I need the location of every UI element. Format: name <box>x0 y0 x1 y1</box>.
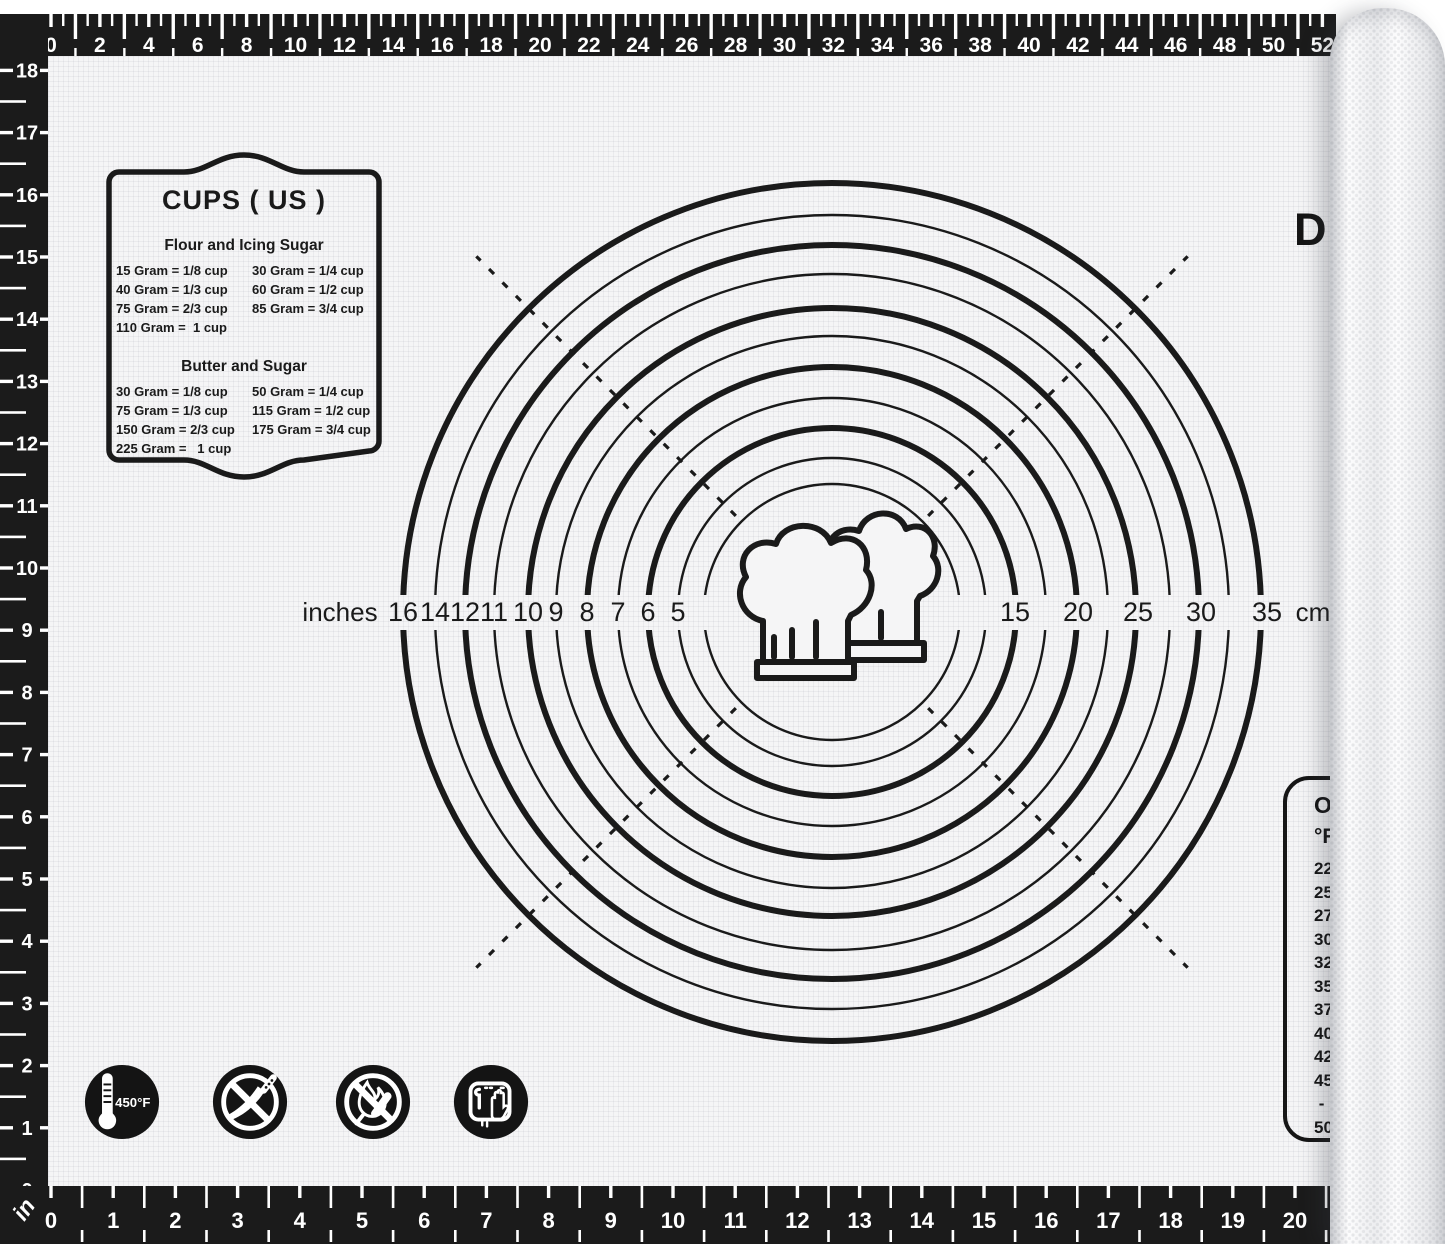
ruler-tick <box>0 598 26 601</box>
ruler-tick <box>0 349 26 352</box>
ruler-tick <box>709 14 712 39</box>
ruler-number: 5 <box>356 1208 368 1233</box>
ruler-tick <box>1052 14 1055 39</box>
ruler-tick <box>1272 14 1275 27</box>
ruler-tick <box>612 14 615 39</box>
ruler-tick <box>1076 1230 1079 1242</box>
conversion-right: 50 Gram = 1/4 cup <box>252 382 372 401</box>
ruler-tick <box>236 1186 239 1198</box>
ruler-tick <box>1076 1186 1079 1208</box>
ruler-tick <box>578 1186 581 1208</box>
ruler-tick <box>40 69 48 72</box>
ruler-tick <box>0 162 26 165</box>
ruler-tick <box>600 14 602 26</box>
ruler-tick <box>758 14 761 39</box>
ruler-tick <box>807 14 810 39</box>
ruler-tick <box>143 1186 146 1208</box>
ruler-tick <box>978 14 981 27</box>
ruler-tick <box>0 1158 26 1161</box>
ruler-tick <box>1101 14 1104 39</box>
ruler-tick <box>1200 1186 1203 1208</box>
ruler-tick <box>0 380 13 383</box>
ruler-number: 17 <box>16 123 38 145</box>
ruler-number: 10 <box>661 1208 685 1233</box>
ruler-number: 4 <box>21 931 33 953</box>
ruler-tick <box>1014 1230 1017 1242</box>
ruler-tick <box>0 784 26 787</box>
ruler-number: 8 <box>241 34 253 56</box>
ruler-tick <box>423 1186 426 1198</box>
ruler-number: 0 <box>45 1208 57 1233</box>
ruler-number: 8 <box>542 1208 554 1233</box>
ruler-tick <box>318 14 321 39</box>
ruler-tick <box>954 48 956 56</box>
ruler-tick <box>857 48 859 56</box>
ruler-tick <box>267 1186 270 1208</box>
ruler-tick <box>221 48 223 56</box>
cups-title: CUPS ( US ) <box>100 185 388 216</box>
ruler-tick <box>172 48 174 56</box>
ruler-tick <box>0 504 13 507</box>
ruler-tick <box>0 100 26 103</box>
ruler-tick <box>982 1186 985 1198</box>
ruler-tick <box>1199 48 1201 56</box>
conversion-left: 15 Gram = 1/8 cup <box>116 261 236 280</box>
ruler-tick <box>40 504 48 507</box>
ruler-left-inches: 0123456789101112131415161718 <box>0 14 48 1244</box>
ruler-tick <box>331 14 333 26</box>
ruler-tick <box>641 1186 644 1208</box>
ruler-tick <box>74 48 76 56</box>
ruler-number: 28 <box>724 34 748 56</box>
ruler-tick <box>330 1186 333 1208</box>
ruler-number: 14 <box>16 309 39 331</box>
ruler-tick <box>0 255 13 258</box>
ruler-number: 26 <box>675 34 698 56</box>
ruler-tick <box>40 753 48 756</box>
ruler-tick <box>636 14 639 27</box>
ruler-tick <box>330 1230 333 1242</box>
conversion-left: 30 Gram = 1/8 cup <box>116 382 236 401</box>
ruler-tick <box>796 14 798 26</box>
ruler-tick <box>40 1064 48 1067</box>
butter-heading: Butter and Sugar <box>100 358 388 376</box>
ruler-tick <box>1003 14 1006 39</box>
ruler-tick <box>765 1186 768 1208</box>
ruler-tick <box>1293 1186 1296 1198</box>
ruler-tick <box>1027 14 1030 27</box>
ruler-number: 46 <box>1164 34 1187 56</box>
ruler-tick <box>98 14 101 27</box>
conversion-left: 225 Gram = 1 cup <box>116 439 236 458</box>
ruler-tick <box>0 1064 13 1067</box>
ruler-tick <box>1263 1186 1266 1208</box>
ruler-tick <box>485 1186 488 1198</box>
ruler-number: 16 <box>431 34 454 56</box>
ruler-tick <box>844 14 846 26</box>
ruler-tick <box>514 14 517 39</box>
ruler-tick <box>1040 14 1042 26</box>
ruler-tick <box>40 255 48 258</box>
ruler-tick <box>514 48 516 56</box>
ruler-number: 12 <box>785 1208 809 1233</box>
ruler-tick <box>1150 14 1153 39</box>
ruler-tick <box>367 14 370 39</box>
ruler-tick <box>1236 14 1238 26</box>
ruler-tick <box>355 14 357 26</box>
ruler-tick <box>258 14 260 26</box>
ruler-tick <box>1248 48 1250 56</box>
ruler-tick <box>74 14 77 39</box>
ruler-tick <box>205 1186 208 1208</box>
ruler-number: 15 <box>16 247 38 269</box>
ruler-tick <box>205 1230 208 1242</box>
ruler-number: 20 <box>1283 1208 1307 1233</box>
ruler-tick <box>0 847 26 850</box>
ruler-tick <box>209 14 211 26</box>
ruler-number: 34 <box>871 34 895 56</box>
ruler-tick <box>429 14 431 26</box>
ruler-tick <box>661 14 664 39</box>
ruler-tick <box>673 14 675 26</box>
max-temperature-badge: 450°F <box>83 1063 161 1141</box>
no-open-flame-badge <box>334 1063 412 1141</box>
ruler-tick <box>1064 14 1066 26</box>
conversion-row: 225 Gram = 1 cup <box>100 439 388 458</box>
ruler-tick <box>0 566 13 569</box>
ruler-tick <box>40 815 48 818</box>
ruler-number: 14 <box>382 34 406 56</box>
ruler-tick <box>671 1186 674 1198</box>
ruler-tick <box>1138 1230 1141 1242</box>
ruler-tick <box>0 909 26 912</box>
ruler-number: 8 <box>21 682 32 704</box>
ruler-tick <box>502 14 504 26</box>
ruler-number: 24 <box>626 34 650 56</box>
ruler-tick <box>889 1230 892 1242</box>
ruler-tick <box>0 691 13 694</box>
ruler-tick <box>0 318 13 321</box>
ruler-number: 15 <box>972 1208 996 1233</box>
ruler-tick <box>0 629 13 632</box>
ruler-number: 7 <box>21 745 32 767</box>
ruler-number: 16 <box>16 185 38 207</box>
ruler-tick <box>563 48 565 56</box>
ruler-tick <box>1211 14 1213 26</box>
conversion-row: 110 Gram = 1 cup <box>100 318 388 337</box>
ruler-tick <box>0 1033 26 1036</box>
ruler-tick <box>1003 48 1005 56</box>
ruler-tick <box>1296 14 1299 39</box>
conversion-row: 150 Gram = 2/3 cup175 Gram = 3/4 cup <box>100 420 388 439</box>
ruler-number: 16 <box>1034 1208 1058 1233</box>
ruler-number: 12 <box>333 34 356 56</box>
ruler-tick <box>661 48 663 56</box>
ruler-tick <box>796 1186 799 1198</box>
ruler-tick <box>734 14 737 27</box>
ruler-tick <box>1014 1186 1017 1208</box>
ruler-number: 1 <box>107 1208 119 1233</box>
cups-conversion-box: CUPS ( US ) Flour and Icing Sugar 15 Gra… <box>100 143 388 489</box>
oven-mitt-badge <box>452 1063 530 1141</box>
ruler-tick <box>991 14 993 26</box>
ruler-tick <box>1285 14 1287 26</box>
ruler-tick <box>609 1186 612 1198</box>
ruler-tick <box>174 1186 177 1198</box>
brand-text-partial: D <box>1294 204 1327 256</box>
ruler-tick <box>856 14 859 39</box>
ruler-tick <box>0 660 26 663</box>
ruler-number: 2 <box>94 34 106 56</box>
ruler-tick <box>1150 48 1152 56</box>
ruler-tick <box>649 14 651 26</box>
ruler-tick <box>967 14 969 26</box>
ruler-tick <box>0 1095 26 1098</box>
ruler-tick <box>1113 14 1115 26</box>
conversion-right: 60 Gram = 1/2 cup <box>252 280 372 299</box>
ruler-tick <box>111 14 113 26</box>
conversion-right: 85 Gram = 3/4 cup <box>252 299 372 318</box>
ruler-tick <box>40 629 48 632</box>
butter-rows: 30 Gram = 1/8 cup50 Gram = 1/4 cup75 Gra… <box>100 382 388 458</box>
ruler-number: 19 <box>1221 1208 1245 1233</box>
ruler-tick <box>771 14 773 26</box>
ruler-tick <box>1045 1186 1048 1198</box>
ruler-number: 50 <box>1262 34 1285 56</box>
ruler-number: 30 <box>773 34 796 56</box>
ruler-tick <box>1016 14 1018 26</box>
ruler-number: 4 <box>143 34 155 56</box>
ruler-number: 3 <box>21 993 32 1015</box>
ruler-tick <box>40 380 48 383</box>
ruler-number: 18 <box>16 60 38 82</box>
ruler-tick <box>1223 14 1226 27</box>
ruler-tick <box>827 1230 830 1242</box>
ruler-tick <box>0 940 13 943</box>
ruler-tick <box>269 14 272 39</box>
ruler-tick <box>0 225 26 228</box>
ruler-tick <box>282 14 284 26</box>
ruler-number: 48 <box>1213 34 1237 56</box>
ruler-tick <box>930 14 933 27</box>
ruler-tick <box>112 1186 115 1198</box>
ruler-tick <box>40 691 48 694</box>
ruler-tick <box>392 14 395 27</box>
ruler-tick <box>1101 48 1103 56</box>
ruler-tick <box>747 14 749 26</box>
ruler-tick <box>1231 1186 1234 1198</box>
ruler-tick <box>1169 1186 1172 1198</box>
ruler-tick <box>245 14 248 27</box>
conversion-right: 175 Gram = 3/4 cup <box>252 420 372 439</box>
conversion-left: 75 Gram = 2/3 cup <box>116 299 236 318</box>
ruler-tick <box>380 14 382 26</box>
ruler-tick <box>551 14 553 26</box>
ruler-number: 13 <box>16 371 38 393</box>
ruler-number: 11 <box>724 1208 747 1233</box>
ruler-number: 4 <box>294 1208 307 1233</box>
no-knife-badge <box>211 1063 289 1141</box>
ruler-tick <box>918 14 920 26</box>
ruler-number: 40 <box>1017 34 1040 56</box>
ruler-tick <box>417 48 419 56</box>
ruler-tick <box>869 14 871 26</box>
ruler-tick <box>392 1230 395 1242</box>
ruler-tick <box>722 14 724 26</box>
flour-heading: Flour and Icing Sugar <box>100 237 388 255</box>
ruler-tick <box>952 1230 955 1242</box>
conversion-right <box>252 439 372 458</box>
ruler-tick <box>1162 14 1164 26</box>
ruler-tick <box>575 14 577 26</box>
ruler-tick <box>1107 1186 1110 1198</box>
ruler-number: 2 <box>169 1208 181 1233</box>
ruler-tick <box>0 411 26 414</box>
ruler-tick <box>893 14 895 26</box>
ruler-tick <box>453 14 455 26</box>
ruler-number: 18 <box>1158 1208 1182 1233</box>
ruler-tick <box>685 14 688 27</box>
ruler-tick <box>404 14 406 26</box>
ruler-tick <box>0 131 13 134</box>
ruler-number: 22 <box>577 34 600 56</box>
ruler-tick <box>368 48 370 56</box>
ruler-tick <box>952 1186 955 1208</box>
ruler-tick <box>294 14 297 27</box>
ruler-tick <box>319 48 321 56</box>
ruler-tick <box>172 14 175 39</box>
ruler-number: 9 <box>21 620 32 642</box>
ruler-tick <box>527 14 529 26</box>
ruler-tick <box>0 753 13 756</box>
ruler-tick <box>578 1230 581 1242</box>
ruler-tick <box>454 1186 457 1208</box>
ruler-tick <box>307 14 309 26</box>
conversion-left: 150 Gram = 2/3 cup <box>116 420 236 439</box>
ruler-tick <box>808 48 810 56</box>
ruler-tick <box>1174 14 1177 27</box>
ruler-tick <box>563 14 566 39</box>
ruler-tick <box>954 14 957 39</box>
ruler-tick <box>516 1186 519 1208</box>
ruler-tick <box>392 1186 395 1208</box>
ruler-tick <box>698 14 700 26</box>
ruler-tick <box>710 48 712 56</box>
ruler-tick <box>832 14 835 27</box>
ruler-number: 44 <box>1115 34 1139 56</box>
ruler-number: 17 <box>1096 1208 1120 1233</box>
ruler-tick <box>40 877 48 880</box>
ruler-tick <box>478 14 480 26</box>
ruler-tick <box>40 1002 48 1005</box>
conversion-row: 15 Gram = 1/8 cup30 Gram = 1/4 cup <box>100 261 388 280</box>
ruler-tick <box>40 131 48 134</box>
ruler-tick <box>1325 1230 1328 1242</box>
ruler-tick <box>765 1230 768 1242</box>
ruler-number: 9 <box>605 1208 617 1233</box>
ruler-tick <box>123 48 125 56</box>
ruler-number: 20 <box>528 34 551 56</box>
ruler-number: 32 <box>822 34 845 56</box>
ruler-tick <box>905 14 908 39</box>
conversion-row: 40 Gram = 1/3 cup60 Gram = 1/2 cup <box>100 280 388 299</box>
ruler-number: 1 <box>21 1118 32 1140</box>
ruler-tick <box>1076 14 1079 27</box>
ruler-tick <box>889 1186 892 1208</box>
ruler-tick <box>942 14 944 26</box>
conversion-row: 75 Gram = 2/3 cup85 Gram = 3/4 cup <box>100 299 388 318</box>
ruler-tick <box>0 69 13 72</box>
ruler-tick <box>1198 14 1201 39</box>
ruler-tick <box>827 1186 830 1208</box>
ruler-tick <box>1297 48 1299 56</box>
ruler-tick <box>759 48 761 56</box>
ruler-tick <box>703 1230 706 1242</box>
ruler-tick <box>1200 1230 1203 1242</box>
ruler-tick <box>0 473 26 476</box>
rolled-mat-edge <box>1330 8 1445 1244</box>
ruler-tick <box>123 14 126 39</box>
conversion-left: 40 Gram = 1/3 cup <box>116 280 236 299</box>
ruler-tick <box>1138 1186 1141 1208</box>
ruler-tick <box>489 14 492 27</box>
conversion-left: 75 Gram = 1/3 cup <box>116 401 236 420</box>
ruler-tick <box>547 1186 550 1198</box>
ruler-number: 7 <box>480 1208 492 1233</box>
ruler-number: 12 <box>16 434 38 456</box>
ruler-tick <box>703 1186 706 1208</box>
ruler-tick <box>220 14 223 39</box>
ruler-tick <box>0 1126 13 1129</box>
conversion-left: 110 Gram = 1 cup <box>116 318 236 337</box>
ruler-tick <box>1321 14 1324 27</box>
ruler-tick <box>624 14 626 26</box>
ruler-tick <box>267 1230 270 1242</box>
ruler-tick <box>1052 48 1054 56</box>
ruler-tick <box>465 14 468 39</box>
ruler-tick <box>343 14 346 27</box>
ruler-number: 11 <box>16 496 37 518</box>
ruler-tick <box>184 14 186 26</box>
ruler-tick <box>49 14 52 27</box>
ruler-tick <box>1325 1186 1328 1208</box>
ruler-tick <box>40 1126 48 1129</box>
ruler-number: 42 <box>1066 34 1089 56</box>
ruler-tick <box>906 48 908 56</box>
ruler-tick <box>1260 14 1262 26</box>
ruler-tick <box>641 1230 644 1242</box>
ruler-tick <box>360 1186 363 1198</box>
ruler-bottom-inches: 01234567891011121314151617181920 <box>0 1186 1340 1244</box>
ruler-tick <box>920 1186 923 1198</box>
ruler-tick <box>40 442 48 445</box>
ruler-tick <box>0 877 13 880</box>
ruler-number: 6 <box>418 1208 430 1233</box>
ruler-tick <box>465 48 467 56</box>
ruler-tick <box>147 14 150 27</box>
flour-rows: 15 Gram = 1/8 cup30 Gram = 1/4 cup40 Gra… <box>100 261 388 337</box>
ruler-number: 14 <box>910 1208 935 1233</box>
ruler-tick <box>1125 14 1128 27</box>
ruler-tick <box>0 971 26 974</box>
pastry-mat-product-photo: 0246810121416182022242628303234363840424… <box>0 0 1445 1244</box>
ruler-tick <box>1187 14 1189 26</box>
conversion-row: 30 Gram = 1/8 cup50 Gram = 1/4 cup <box>100 382 388 401</box>
ruler-tick <box>0 442 13 445</box>
ruler-tick <box>858 1186 861 1198</box>
max-temp-label: 450°F <box>115 1095 150 1110</box>
ruler-tick <box>62 14 64 26</box>
